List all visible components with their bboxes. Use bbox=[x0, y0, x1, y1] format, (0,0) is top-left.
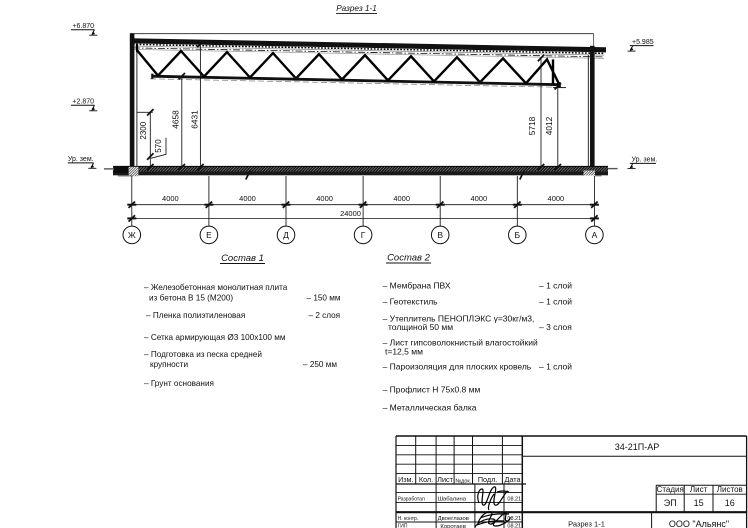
svg-text:– 150 мм: – 150 мм bbox=[307, 293, 341, 302]
svg-text:Ур. зем.: Ур. зем. bbox=[632, 157, 658, 164]
svg-text:Изм.: Изм. bbox=[398, 475, 413, 484]
svg-text:Б: Б bbox=[515, 230, 521, 240]
svg-text:Кол.: Кол. bbox=[419, 475, 433, 484]
svg-text:4012: 4012 bbox=[544, 116, 554, 135]
svg-text:Подл.: Подл. bbox=[478, 475, 497, 484]
svg-text:ООО "Альянс": ООО "Альянс" bbox=[669, 519, 729, 528]
svg-text:+5.985: +5.985 bbox=[632, 39, 654, 46]
svg-text:Состав 2: Состав 2 bbox=[387, 253, 431, 264]
svg-text:Состав 1: Состав 1 bbox=[221, 253, 264, 264]
svg-text:Е: Е bbox=[206, 230, 212, 240]
svg-text:4000: 4000 bbox=[548, 194, 565, 203]
svg-text:4000: 4000 bbox=[316, 194, 333, 203]
svg-text:Стадия: Стадия bbox=[657, 485, 684, 494]
svg-text:– Металлическая балка: – Металлическая балка bbox=[383, 403, 477, 413]
svg-text:+6.870: +6.870 bbox=[72, 23, 94, 30]
svg-text:4000: 4000 bbox=[239, 194, 256, 203]
svg-text:Лист: Лист bbox=[437, 475, 453, 484]
svg-text:6431: 6431 bbox=[189, 110, 199, 129]
svg-text:№док.: №док. bbox=[455, 478, 471, 484]
svg-text:– Пароизоляция для плоских кро: – Пароизоляция для плоских кровель bbox=[383, 362, 532, 372]
svg-text:– Железобетонная монолитная п: – Железобетонная монолитная плита bbox=[144, 283, 288, 292]
svg-text:16: 16 bbox=[725, 498, 735, 508]
svg-text:– Геотекстиль: – Геотекстиль bbox=[383, 297, 439, 307]
svg-text:– Грунт основания: – Грунт основания bbox=[144, 379, 214, 388]
svg-text:крупности: крупности bbox=[150, 360, 188, 369]
svg-text:Д: Д bbox=[283, 230, 289, 240]
svg-text:– Пленка полиэтиленовая: – Пленка полиэтиленовая bbox=[146, 311, 245, 320]
svg-text:– Мембрана ПВХ: – Мембрана ПВХ bbox=[383, 281, 451, 291]
svg-text:– 1 слой: – 1 слой bbox=[539, 297, 572, 307]
svg-text:5718: 5718 bbox=[527, 116, 537, 135]
svg-text:– 1 слой: – 1 слой bbox=[539, 362, 572, 372]
svg-text:ГИП: ГИП bbox=[398, 524, 408, 528]
svg-text:4000: 4000 bbox=[393, 194, 410, 203]
svg-text:В: В bbox=[437, 230, 443, 240]
svg-text:ЭП: ЭП bbox=[664, 498, 677, 508]
svg-text:Листов: Листов bbox=[717, 485, 743, 494]
svg-text:Коротаев: Коротаев bbox=[440, 524, 465, 528]
svg-text:2300: 2300 bbox=[139, 121, 148, 139]
svg-text:Разрез 1-1: Разрез 1-1 bbox=[336, 4, 377, 13]
svg-text:– 250 мм: – 250 мм bbox=[303, 360, 337, 369]
svg-text:Лист: Лист bbox=[690, 485, 708, 494]
svg-text:– 2 слоя: – 2 слоя bbox=[309, 311, 341, 320]
svg-text:t=12,5 мм: t=12,5 мм bbox=[385, 347, 423, 357]
svg-text:570: 570 bbox=[154, 139, 163, 153]
svg-text:08.21: 08.21 bbox=[507, 497, 521, 503]
svg-text:Разработал: Разработал bbox=[398, 496, 425, 502]
svg-text:4000: 4000 bbox=[470, 194, 487, 203]
svg-text:толщиной 50 мм: толщиной 50 мм bbox=[388, 322, 453, 332]
svg-text:4000: 4000 bbox=[162, 194, 179, 203]
svg-text:из бетона В 15 (М200): из бетона В 15 (М200) bbox=[149, 293, 233, 302]
svg-text:24000: 24000 bbox=[340, 209, 361, 218]
svg-text:Ж: Ж bbox=[128, 230, 136, 240]
svg-text:Н. контр.: Н. контр. bbox=[398, 516, 419, 522]
svg-text:15: 15 bbox=[694, 498, 704, 508]
svg-text:– 3 слоя: – 3 слоя bbox=[539, 322, 572, 332]
svg-text:Разрез 1-1: Разрез 1-1 bbox=[568, 520, 605, 528]
svg-text:– Подготовка из песка средней: – Подготовка из песка средней bbox=[144, 350, 262, 359]
svg-text:Двоеглазов: Двоеглазов bbox=[438, 516, 469, 522]
svg-text:+2.870: +2.870 bbox=[72, 99, 94, 106]
svg-text:– Профлист Н 75x0.8 мм: – Профлист Н 75x0.8 мм bbox=[383, 385, 481, 395]
svg-text:34-21П-АР: 34-21П-АР bbox=[615, 442, 660, 452]
svg-text:Дата: Дата bbox=[505, 475, 521, 484]
svg-text:– 1 слой: – 1 слой bbox=[539, 281, 572, 291]
svg-text:Ур. зем.: Ур. зем. bbox=[68, 156, 94, 163]
svg-text:Г: Г bbox=[361, 230, 366, 240]
svg-text:08.21: 08.21 bbox=[507, 524, 521, 528]
svg-text:– Сетка армирующая Ø3 100x100: – Сетка армирующая Ø3 100x100 мм bbox=[144, 333, 286, 342]
svg-text:Шабалина: Шабалина bbox=[438, 496, 467, 502]
svg-text:А: А bbox=[592, 230, 598, 240]
svg-text:4658: 4658 bbox=[171, 110, 181, 129]
